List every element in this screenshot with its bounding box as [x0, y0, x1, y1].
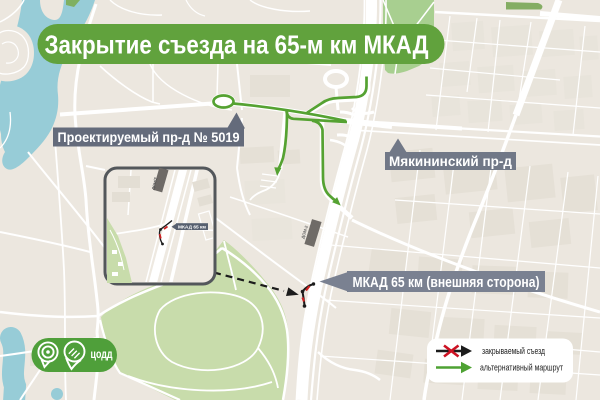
- svg-text:альтернативный маршрут: альтернативный маршрут: [480, 363, 563, 373]
- svg-text:МКАД 65 км: МКАД 65 км: [178, 224, 207, 229]
- svg-text:Закрытие съезда на 65-м км МКА: Закрытие съезда на 65-м км МКАД: [45, 30, 429, 60]
- svg-text:Проектируемый пр-д № 5019: Проектируемый пр-д № 5019: [58, 129, 240, 145]
- svg-text:Мякининский пр-д: Мякининский пр-д: [389, 153, 512, 169]
- svg-text:МКАД 65 км (внешняя сторона): МКАД 65 км (внешняя сторона): [353, 274, 540, 291]
- svg-text:закрываемый съезд: закрываемый съезд: [482, 346, 546, 356]
- svg-text:цодд: цодд: [91, 347, 113, 361]
